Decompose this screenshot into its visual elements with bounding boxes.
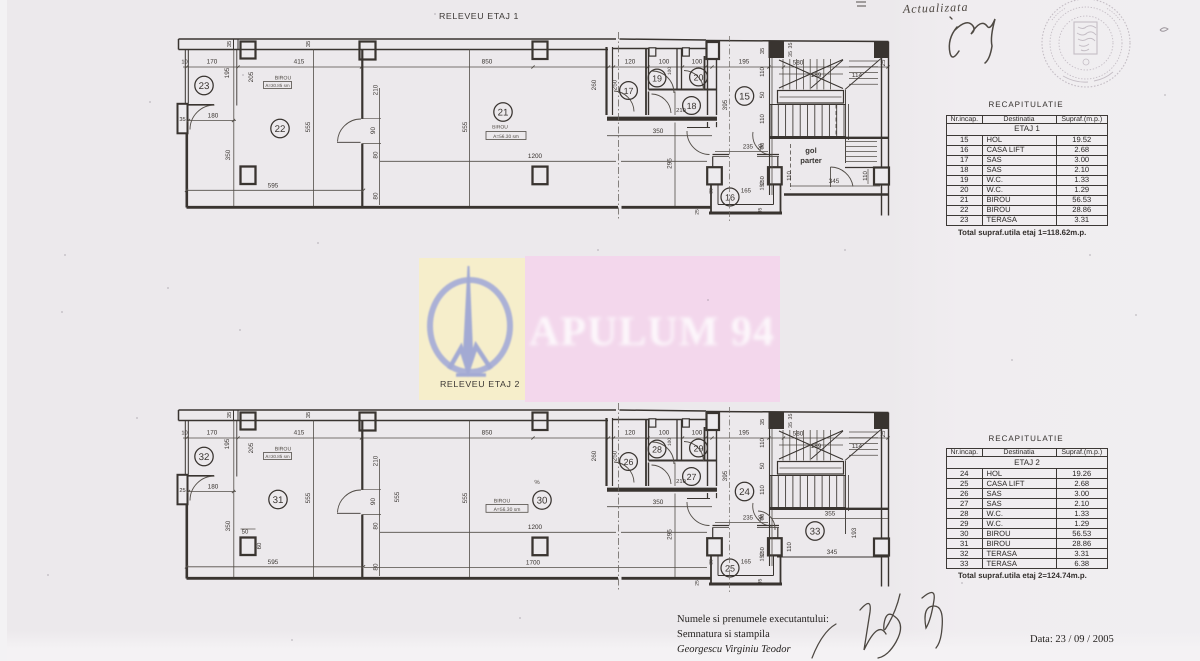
svg-text:28: 28 (652, 444, 662, 454)
svg-text:235: 235 (743, 144, 754, 151)
svg-text:210: 210 (373, 455, 380, 466)
svg-text:%: % (534, 479, 540, 486)
svg-text:25: 25 (695, 209, 701, 215)
svg-text:350: 350 (653, 128, 664, 135)
svg-text:193: 193 (851, 527, 858, 538)
svg-text:110: 110 (862, 171, 869, 181)
svg-text:80: 80 (373, 522, 380, 530)
svg-text:555: 555 (305, 492, 312, 503)
svg-text:1700: 1700 (526, 560, 541, 567)
svg-text:100: 100 (692, 430, 703, 437)
svg-text:170: 170 (207, 430, 218, 437)
svg-text:580: 580 (793, 60, 804, 67)
svg-text:555: 555 (462, 121, 469, 132)
svg-text:415: 415 (294, 430, 305, 437)
svg-text:415: 415 (294, 59, 305, 66)
svg-text:BIROU: BIROU (275, 76, 292, 82)
svg-text:26: 26 (624, 457, 634, 467)
svg-text:35: 35 (788, 43, 794, 49)
svg-text:80: 80 (373, 563, 380, 571)
svg-text:29: 29 (694, 443, 704, 453)
svg-text:580: 580 (793, 431, 804, 438)
svg-text:295: 295 (667, 158, 674, 169)
svg-text:350: 350 (225, 520, 232, 531)
svg-text:100: 100 (667, 67, 673, 75)
svg-text:555: 555 (305, 121, 312, 132)
svg-text:555: 555 (394, 491, 401, 502)
svg-text:35: 35 (759, 48, 766, 54)
svg-text:110: 110 (759, 438, 766, 448)
svg-text:195: 195 (739, 430, 750, 437)
svg-text:110: 110 (759, 67, 766, 77)
svg-text:35: 35 (759, 419, 766, 425)
svg-text:parter: parter (800, 156, 822, 165)
svg-text:35: 35 (179, 117, 185, 123)
svg-text:110: 110 (759, 485, 766, 495)
svg-text:RELEVEU ETAJ 1: RELEVEU ETAJ 1 (439, 11, 519, 21)
svg-text:35: 35 (305, 41, 312, 47)
svg-text:27: 27 (687, 472, 697, 482)
svg-text:15: 15 (739, 91, 750, 102)
svg-text:205: 205 (248, 442, 255, 453)
svg-text:195: 195 (224, 438, 231, 449)
svg-text:180: 180 (208, 113, 219, 120)
svg-text:1200: 1200 (528, 153, 543, 160)
svg-text:50: 50 (242, 529, 249, 536)
svg-text:165: 165 (741, 559, 752, 566)
svg-text:APULUM 94: APULUM 94 (529, 309, 775, 355)
svg-text:gol: gol (805, 146, 816, 155)
svg-text:250: 250 (612, 450, 619, 461)
svg-text:110: 110 (786, 171, 793, 181)
svg-text:180: 180 (208, 484, 219, 491)
svg-text:355: 355 (825, 511, 836, 518)
svg-text:350: 350 (225, 149, 232, 160)
svg-text:165: 165 (741, 188, 752, 195)
svg-text:350: 350 (653, 499, 664, 506)
svg-text:19: 19 (652, 73, 662, 83)
svg-text:10: 10 (181, 431, 187, 437)
svg-text:100: 100 (659, 59, 670, 66)
svg-text:210: 210 (373, 84, 380, 95)
svg-text:195: 195 (739, 59, 750, 66)
svg-text:150: 150 (759, 176, 766, 186)
svg-text:33: 33 (810, 526, 821, 537)
svg-text:25: 25 (725, 563, 735, 573)
svg-text:205: 205 (248, 71, 255, 82)
svg-text:35: 35 (788, 51, 794, 57)
svg-text:110: 110 (786, 542, 793, 552)
svg-text:110: 110 (759, 114, 766, 124)
svg-text:21: 21 (498, 107, 509, 118)
svg-text:35: 35 (758, 208, 764, 214)
svg-text:260: 260 (591, 450, 598, 461)
svg-text:90: 90 (759, 514, 766, 520)
svg-text:31: 31 (273, 495, 284, 506)
svg-text:35: 35 (788, 422, 794, 428)
svg-text:BIROU: BIROU (492, 125, 508, 131)
svg-text:25: 25 (695, 580, 701, 586)
svg-text:30: 30 (537, 495, 548, 506)
svg-text:1200: 1200 (528, 524, 543, 531)
svg-text:35: 35 (788, 414, 794, 420)
svg-text:20: 20 (694, 72, 704, 82)
svg-text:10: 10 (181, 60, 187, 66)
svg-text:100: 100 (692, 59, 703, 66)
svg-text:18: 18 (687, 101, 697, 111)
svg-text:30: 30 (709, 188, 715, 194)
svg-text:35: 35 (758, 579, 764, 585)
svg-text:395: 395 (722, 99, 729, 110)
svg-text:A=56.30 sm: A=56.30 sm (493, 134, 519, 140)
svg-text:16: 16 (725, 192, 735, 202)
svg-text:35: 35 (226, 41, 233, 47)
svg-text:595: 595 (268, 183, 279, 190)
svg-text:90: 90 (759, 143, 766, 149)
svg-text:120: 120 (625, 430, 636, 437)
svg-text:22: 22 (275, 124, 286, 135)
svg-text:35: 35 (305, 412, 312, 418)
svg-text:170: 170 (207, 59, 218, 66)
svg-text:25: 25 (179, 488, 185, 494)
svg-text:395: 395 (722, 470, 729, 481)
svg-text:A=56.30 sm: A=56.30 sm (494, 507, 521, 513)
svg-text:345: 345 (827, 549, 838, 556)
svg-text:345: 345 (829, 178, 840, 185)
svg-text:195: 195 (224, 67, 231, 78)
svg-text:850: 850 (482, 430, 493, 437)
svg-text:595: 595 (268, 559, 279, 566)
svg-text:555: 555 (462, 492, 469, 503)
svg-text:80: 80 (373, 192, 380, 200)
svg-text:30: 30 (709, 559, 715, 565)
svg-text:120: 120 (625, 59, 636, 66)
svg-text:90: 90 (370, 127, 377, 135)
svg-text:A=30.85 sm: A=30.85 sm (265, 83, 289, 88)
svg-text:295: 295 (667, 529, 674, 540)
svg-text:RELEVEU ETAJ 2: RELEVEU ETAJ 2 (440, 379, 520, 389)
svg-text:Actualizata: Actualizata (902, 0, 969, 16)
svg-text:50: 50 (759, 462, 766, 469)
svg-text:90: 90 (370, 498, 377, 506)
svg-text:80: 80 (373, 151, 380, 159)
svg-text:100: 100 (667, 438, 673, 446)
svg-text:32: 32 (199, 452, 210, 463)
svg-text:235: 235 (743, 515, 754, 522)
svg-text:150: 150 (759, 547, 766, 557)
svg-text:BIROU: BIROU (275, 447, 292, 453)
svg-text:24: 24 (739, 487, 750, 498)
svg-text:250: 250 (612, 79, 619, 90)
svg-text:850: 850 (482, 59, 493, 66)
svg-text:50: 50 (759, 91, 766, 98)
svg-text:17: 17 (624, 86, 634, 96)
svg-text:260: 260 (591, 79, 598, 90)
svg-text:A=30.85 sm: A=30.85 sm (265, 454, 289, 459)
svg-text:60: 60 (256, 542, 263, 549)
svg-text:100: 100 (659, 430, 670, 437)
svg-text:23: 23 (199, 81, 210, 92)
svg-text:35: 35 (226, 412, 233, 418)
svg-text:BIROU: BIROU (494, 499, 511, 505)
